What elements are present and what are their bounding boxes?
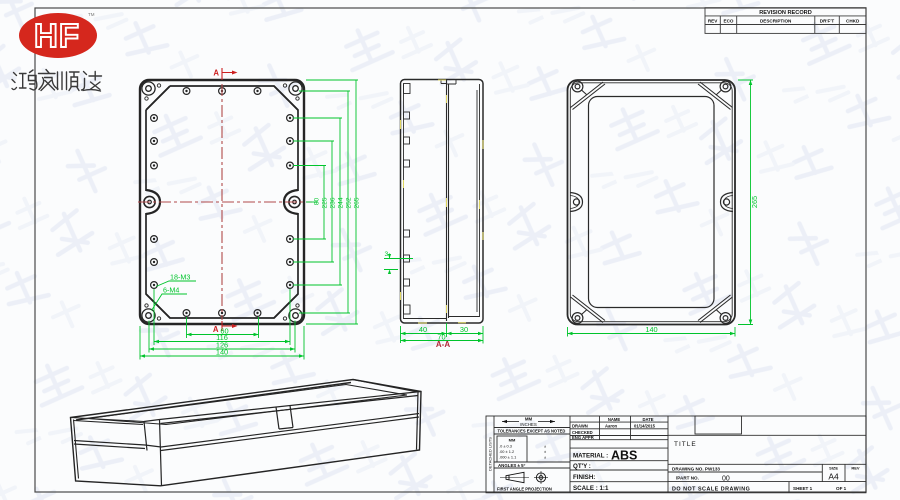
svg-text:DO NOT SCALE DRAWING: DO NOT SCALE DRAWING bbox=[672, 486, 750, 492]
svg-text:252: 252 bbox=[346, 197, 353, 208]
svg-text:SIZE: SIZE bbox=[829, 466, 838, 471]
svg-text:SCALE : 1:1: SCALE : 1:1 bbox=[573, 485, 609, 492]
svg-text:DR'F'T: DR'F'T bbox=[820, 19, 835, 24]
svg-text:/PART NO.: /PART NO. bbox=[676, 475, 699, 480]
svg-text:TITLE: TITLE bbox=[674, 441, 697, 448]
svg-text:A4: A4 bbox=[828, 472, 839, 482]
svg-text:A: A bbox=[213, 69, 219, 78]
svg-text:MM: MM bbox=[525, 417, 533, 422]
svg-text:140: 140 bbox=[216, 348, 228, 357]
svg-text:265: 265 bbox=[750, 196, 759, 208]
svg-text:DATE: DATE bbox=[642, 417, 653, 422]
svg-text:REVISION RECORD: REVISION RECORD bbox=[759, 10, 812, 16]
svg-text:ANGLES ± 5°: ANGLES ± 5° bbox=[498, 463, 526, 468]
svg-text:140: 140 bbox=[645, 325, 657, 334]
svg-text:236: 236 bbox=[330, 197, 337, 208]
svg-text:HF: HF bbox=[34, 17, 80, 54]
svg-text:FIRST ANGLE PROJECTION: FIRST ANGLE PROJECTION bbox=[497, 487, 552, 492]
svg-text:NAME: NAME bbox=[608, 417, 621, 422]
svg-text:DRAWING NO. PW133: DRAWING NO. PW133 bbox=[672, 466, 720, 471]
svg-text:DESCRIPTION: DESCRIPTION bbox=[760, 19, 792, 24]
svg-text:40: 40 bbox=[419, 325, 427, 334]
svg-text:80: 80 bbox=[314, 198, 321, 206]
svg-text:00: 00 bbox=[722, 475, 730, 482]
svg-text:3: 3 bbox=[385, 251, 389, 258]
svg-text:.000 ± 1.1: .000 ± 1.1 bbox=[499, 455, 516, 460]
svg-text:.0 ± 0.3: .0 ± 0.3 bbox=[499, 444, 512, 449]
svg-text:QT'Y :: QT'Y : bbox=[573, 463, 591, 470]
svg-text:Aaron: Aaron bbox=[605, 423, 618, 428]
svg-text:FINISH:: FINISH: bbox=[573, 474, 595, 481]
svg-text:MM: MM bbox=[509, 438, 516, 443]
svg-text:6-M4: 6-M4 bbox=[163, 286, 179, 295]
svg-text:30: 30 bbox=[460, 325, 468, 334]
svg-text:REV: REV bbox=[851, 466, 860, 471]
svg-text:TOLERANCES EXCEPT AS NOTED: TOLERANCES EXCEPT AS NOTED bbox=[498, 428, 566, 433]
svg-text:INCHES: INCHES bbox=[520, 422, 537, 427]
svg-text:ECO: ECO bbox=[724, 19, 734, 24]
svg-text:225: 225 bbox=[322, 197, 329, 208]
svg-text:SHEET 1: SHEET 1 bbox=[793, 486, 813, 491]
svg-text:A-A: A-A bbox=[436, 340, 450, 349]
svg-text:DRAWN: DRAWN bbox=[572, 423, 588, 428]
svg-text:244: 244 bbox=[338, 197, 345, 208]
svg-text:DETACHED LISTS: DETACHED LISTS bbox=[488, 437, 493, 471]
svg-text:18-M3: 18-M3 bbox=[170, 273, 190, 282]
svg-text:REV: REV bbox=[708, 19, 718, 24]
svg-text:ABS: ABS bbox=[611, 449, 637, 463]
svg-text:OF 1: OF 1 bbox=[836, 486, 847, 491]
svg-text:01/14/2015: 01/14/2015 bbox=[634, 423, 656, 428]
svg-text:MATERIAL :: MATERIAL : bbox=[573, 453, 608, 460]
svg-text:TM: TM bbox=[88, 12, 95, 17]
svg-text:CHKD: CHKD bbox=[846, 19, 860, 24]
svg-text:.00 ± 1.2: .00 ± 1.2 bbox=[499, 449, 514, 454]
svg-text:ENG APPR: ENG APPR bbox=[572, 435, 594, 440]
svg-text:265: 265 bbox=[354, 197, 361, 208]
